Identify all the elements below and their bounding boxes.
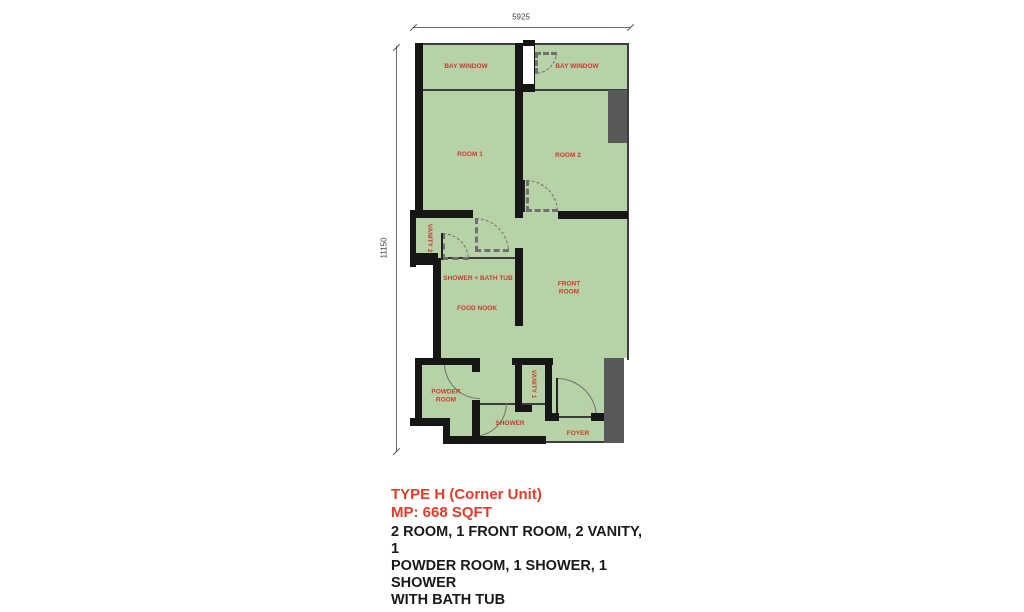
dimension-tick	[627, 24, 634, 31]
wall-segment	[515, 248, 523, 326]
wall-segment	[591, 413, 604, 421]
room-label-food-nook: FOOD NOOK	[457, 305, 497, 313]
room-label-shower: SHOWER	[495, 420, 524, 428]
exterior-wall-thin	[627, 43, 629, 360]
dimension-tick	[393, 448, 400, 455]
room-label-foyer: FOYER	[567, 430, 589, 438]
door-leaf	[523, 180, 525, 212]
wall-segment	[415, 43, 423, 218]
room-label-room-2: ROOM 2	[555, 152, 581, 160]
wall-segment	[433, 258, 441, 358]
caption-block: TYPE H (Corner Unit) MP: 668 SQFT 2 ROOM…	[391, 486, 651, 609]
wall-segment	[415, 358, 478, 365]
room-label-bay-window-left: BAY WINDOW	[444, 63, 487, 71]
wall-segment	[558, 211, 628, 219]
dimension-width-line	[413, 27, 631, 28]
room-label-powder-room: POWDER ROOM	[425, 389, 467, 406]
room-label-vanity-1: VANITY 1	[529, 370, 537, 399]
wall-segment	[472, 358, 480, 372]
service-shaft	[604, 358, 624, 443]
door-leaf	[441, 233, 443, 260]
room-label-vanity-2: VANITY 2	[425, 224, 433, 253]
room-label-shower-bath-tub: SHOWER + BATH TUB	[443, 275, 512, 283]
wall-segment	[415, 210, 473, 218]
room-label-bay-window-right: BAY WINDOW	[555, 63, 598, 71]
door-leaf	[556, 378, 558, 418]
unit-type-title: TYPE H (Corner Unit)	[391, 486, 651, 504]
unit-description-line: POWDER ROOM, 1 SHOWER, 1 SHOWER	[391, 558, 651, 592]
wall-segment	[515, 405, 532, 412]
dimension-height-line	[396, 46, 397, 452]
room-label-front-room: FRONT ROOM	[550, 281, 588, 298]
unit-area: MP: 668 SQFT	[391, 504, 651, 522]
unit-description-line: 2 ROOM, 1 FRONT ROOM, 2 VANITY, 1	[391, 524, 651, 558]
wall-segment	[443, 436, 546, 444]
unit-description-line: WITH BATH TUB	[391, 592, 651, 609]
floor-plan: BAY WINDOW BAY WINDOW ROOM 1 ROOM 2 VANI…	[410, 40, 630, 452]
floor-area	[433, 218, 628, 358]
wall-segment	[545, 358, 552, 420]
wall-segment	[472, 400, 480, 440]
room-label-room-1: ROOM 1	[457, 151, 483, 159]
wall-segment	[415, 358, 422, 425]
dimension-height-label: 11150	[380, 237, 389, 258]
service-shaft	[608, 90, 627, 143]
dimension-width-label: 5925	[512, 13, 530, 22]
door-panel	[522, 45, 535, 85]
wall-segment	[515, 358, 522, 410]
exterior-wall-thin	[546, 441, 604, 443]
wall-segment	[545, 413, 559, 421]
